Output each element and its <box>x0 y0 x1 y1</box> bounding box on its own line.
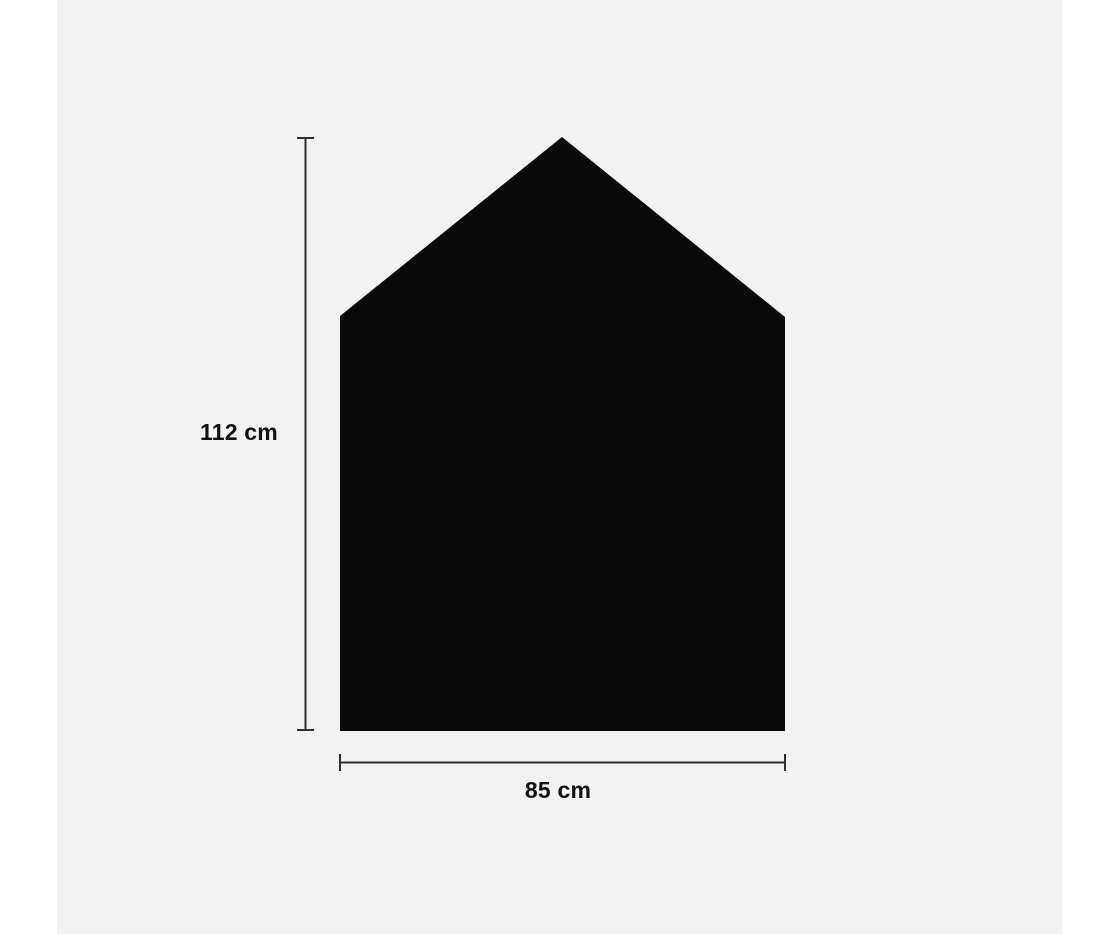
height-dimension-label: 112 cm <box>159 419 319 446</box>
page-background: 112 cm 85 cm <box>0 0 1120 934</box>
house-shape <box>340 137 785 731</box>
width-dimension-label: 85 cm <box>478 777 638 804</box>
